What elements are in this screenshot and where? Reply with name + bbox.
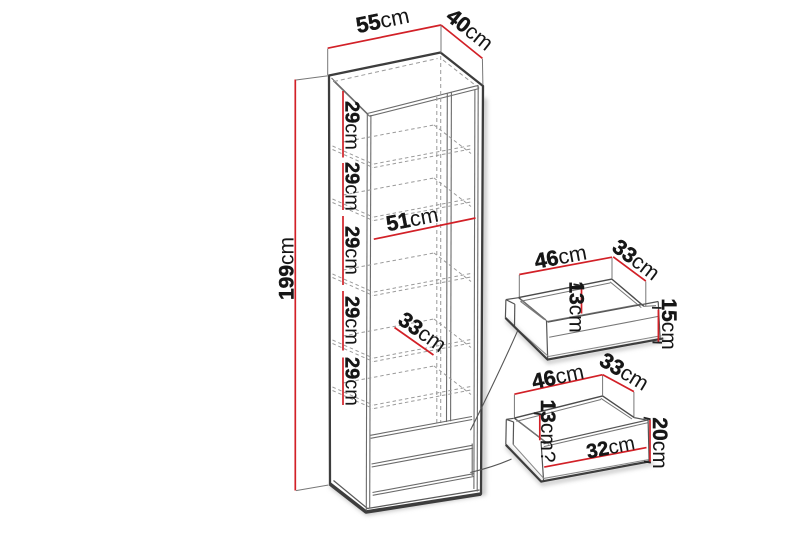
svg-text:29cm: 29cm — [341, 226, 363, 275]
svg-text:29cm: 29cm — [341, 296, 363, 345]
svg-text:13cm: 13cm — [565, 281, 588, 332]
svg-text:199cm: 199cm — [275, 237, 298, 300]
svg-text:13cm?: 13cm? — [536, 399, 559, 462]
svg-text:29cm: 29cm — [341, 162, 363, 211]
svg-text:15cm: 15cm — [657, 298, 680, 349]
svg-text:29cm: 29cm — [341, 357, 363, 406]
svg-text:20cm: 20cm — [648, 417, 671, 468]
svg-text:29cm: 29cm — [341, 101, 363, 150]
